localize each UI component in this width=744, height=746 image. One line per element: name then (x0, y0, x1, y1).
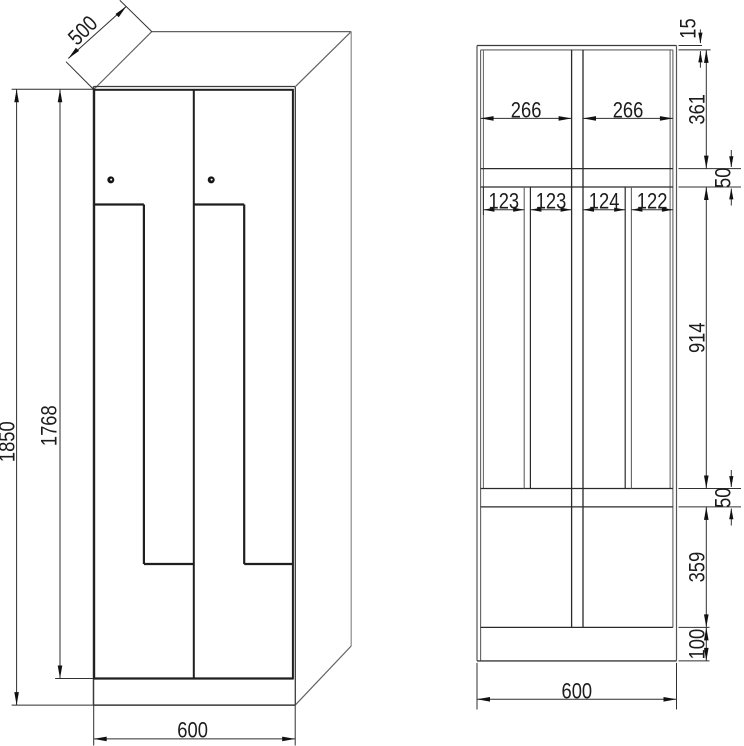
svg-text:266: 266 (511, 97, 542, 122)
svg-text:124: 124 (589, 189, 620, 214)
svg-text:500: 500 (63, 11, 102, 50)
svg-text:600: 600 (177, 717, 208, 742)
svg-text:50: 50 (710, 488, 735, 508)
svg-text:1768: 1768 (37, 405, 62, 446)
svg-text:1850: 1850 (0, 421, 20, 462)
svg-text:122: 122 (637, 189, 668, 214)
svg-text:600: 600 (562, 678, 593, 703)
svg-text:100: 100 (685, 629, 710, 660)
svg-text:914: 914 (685, 322, 710, 353)
svg-text:361: 361 (685, 94, 710, 125)
svg-text:123: 123 (536, 189, 567, 214)
svg-text:359: 359 (685, 552, 710, 583)
svg-text:50: 50 (710, 168, 735, 188)
svg-text:15: 15 (675, 18, 700, 38)
svg-text:266: 266 (613, 97, 644, 122)
svg-text:123: 123 (489, 189, 520, 214)
